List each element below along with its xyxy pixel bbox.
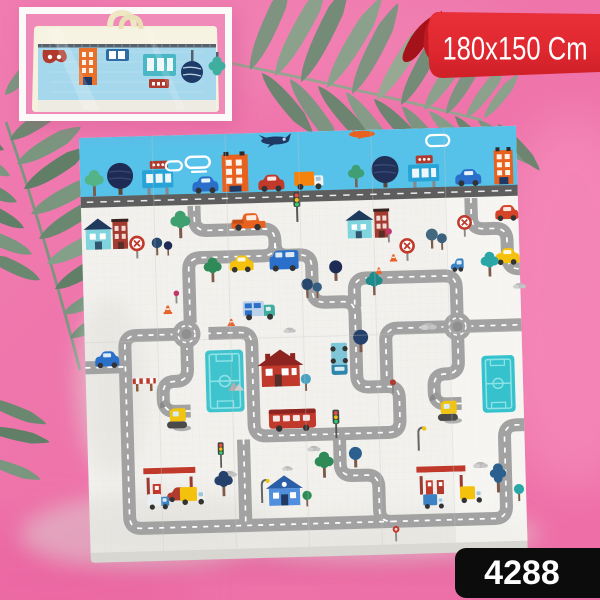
svg-text:180x150 Cm: 180x150 Cm <box>442 32 587 67</box>
svg-text:4288: 4288 <box>484 554 560 592</box>
